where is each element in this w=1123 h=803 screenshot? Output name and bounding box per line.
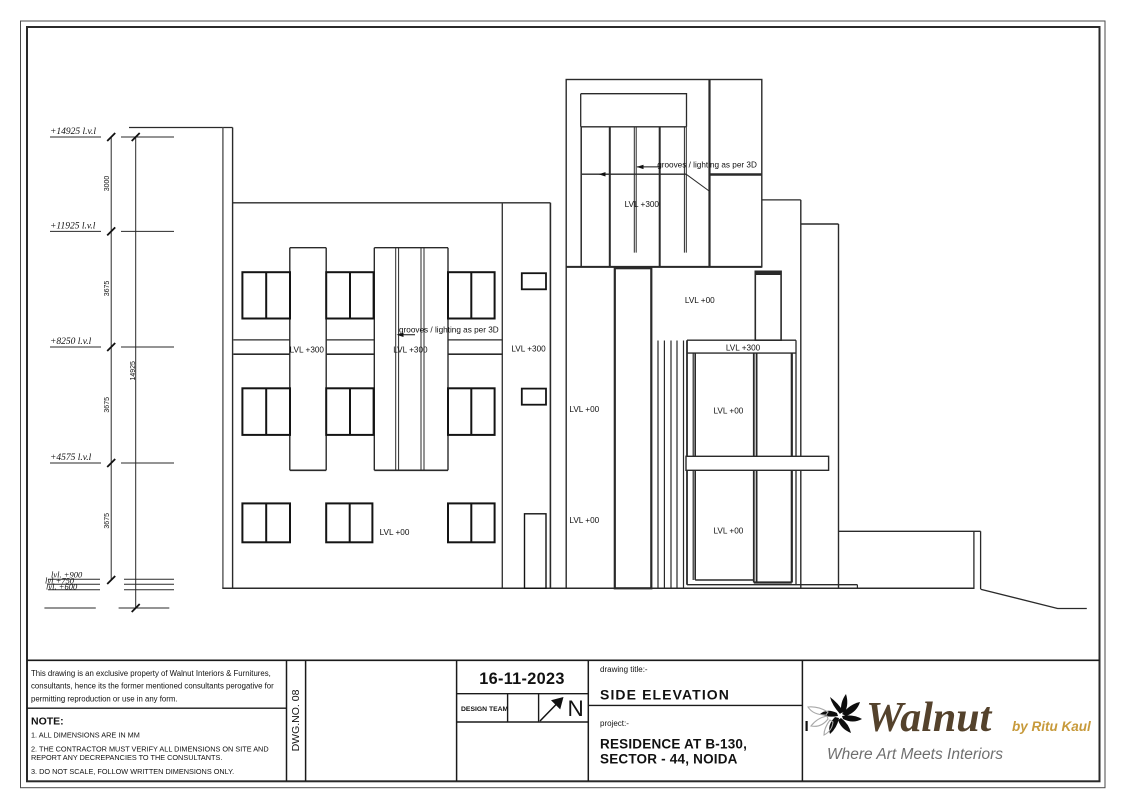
- svg-text:14925: 14925: [130, 361, 137, 381]
- svg-text:LVL +300: LVL +300: [511, 345, 546, 354]
- svg-text:LVL +00: LVL +00: [380, 528, 410, 537]
- svg-text:drawing title:-: drawing title:-: [600, 665, 648, 674]
- svg-text:REPORT ANY DECREPANCIES TO THE: REPORT ANY DECREPANCIES TO THE CONSULTAN…: [31, 753, 222, 762]
- svg-text:permitting reproduction or use: permitting reproduction or use in any fo…: [31, 694, 177, 703]
- svg-text:LVL +300: LVL +300: [290, 345, 325, 354]
- svg-text:grooves / lighting as per 3D: grooves / lighting as per 3D: [399, 326, 499, 335]
- svg-text:3675: 3675: [104, 513, 111, 529]
- svg-text:N: N: [568, 696, 584, 721]
- svg-text:+11925 l.v.l: +11925 l.v.l: [50, 221, 96, 231]
- svg-text:LVL +00: LVL +00: [685, 296, 715, 305]
- svg-text:3675: 3675: [104, 397, 111, 413]
- svg-text:+14925 l.v.l: +14925 l.v.l: [50, 127, 96, 137]
- svg-text:LVL +00: LVL +00: [569, 516, 599, 525]
- svg-text:+4575 l.v.l: +4575 l.v.l: [50, 453, 92, 463]
- svg-text:1. ALL DIMENSIONS ARE IN MM: 1. ALL DIMENSIONS ARE IN MM: [31, 731, 140, 740]
- svg-text:LVL +300: LVL +300: [625, 200, 660, 209]
- svg-text:+8250 l.v.l: +8250 l.v.l: [50, 337, 92, 347]
- svg-text:LVL +00: LVL +00: [569, 405, 599, 414]
- svg-text:consultants, hence its the for: consultants, hence its the former mentio…: [31, 682, 274, 691]
- svg-text:3000: 3000: [104, 176, 111, 192]
- svg-text:Walnut: Walnut: [866, 695, 993, 741]
- svg-text:NOTE:: NOTE:: [31, 716, 64, 728]
- svg-text:grooves / lighting as per 3D: grooves / lighting as per 3D: [657, 160, 757, 169]
- svg-text:DESIGN TEAM: DESIGN TEAM: [461, 706, 509, 713]
- svg-text:SIDE ELEVATION: SIDE ELEVATION: [600, 687, 730, 703]
- svg-text:LVL +300: LVL +300: [726, 344, 761, 353]
- svg-text:LVL +00: LVL +00: [713, 406, 743, 415]
- svg-text:2. THE CONTRACTOR MUST VERIFY: 2. THE CONTRACTOR MUST VERIFY ALL DIMENS…: [31, 745, 269, 754]
- svg-text:16-11-2023: 16-11-2023: [479, 670, 564, 688]
- svg-text:Where Art Meets Interiors: Where Art Meets Interiors: [827, 746, 1003, 763]
- svg-text:DWG.NO. 08: DWG.NO. 08: [290, 689, 302, 751]
- svg-text:by Ritu Kaul: by Ritu Kaul: [1012, 719, 1091, 734]
- svg-text:3. DO NOT SCALE, FOLLOW WRITTE: 3. DO NOT SCALE, FOLLOW WRITTEN DIMENSIO…: [31, 767, 234, 776]
- svg-text:SECTOR - 44, NOIDA: SECTOR - 44, NOIDA: [600, 752, 738, 767]
- svg-text:3675: 3675: [104, 281, 111, 297]
- svg-text:LVL +300: LVL +300: [393, 345, 428, 354]
- svg-text:LVL +00: LVL +00: [713, 527, 743, 536]
- svg-text:project:-: project:-: [600, 719, 629, 728]
- svg-text:lvl. +600: lvl. +600: [46, 582, 78, 592]
- svg-text:This drawing is an exclusive p: This drawing is an exclusive property of…: [31, 669, 271, 678]
- svg-text:RESIDENCE AT B-130,: RESIDENCE AT B-130,: [600, 737, 747, 752]
